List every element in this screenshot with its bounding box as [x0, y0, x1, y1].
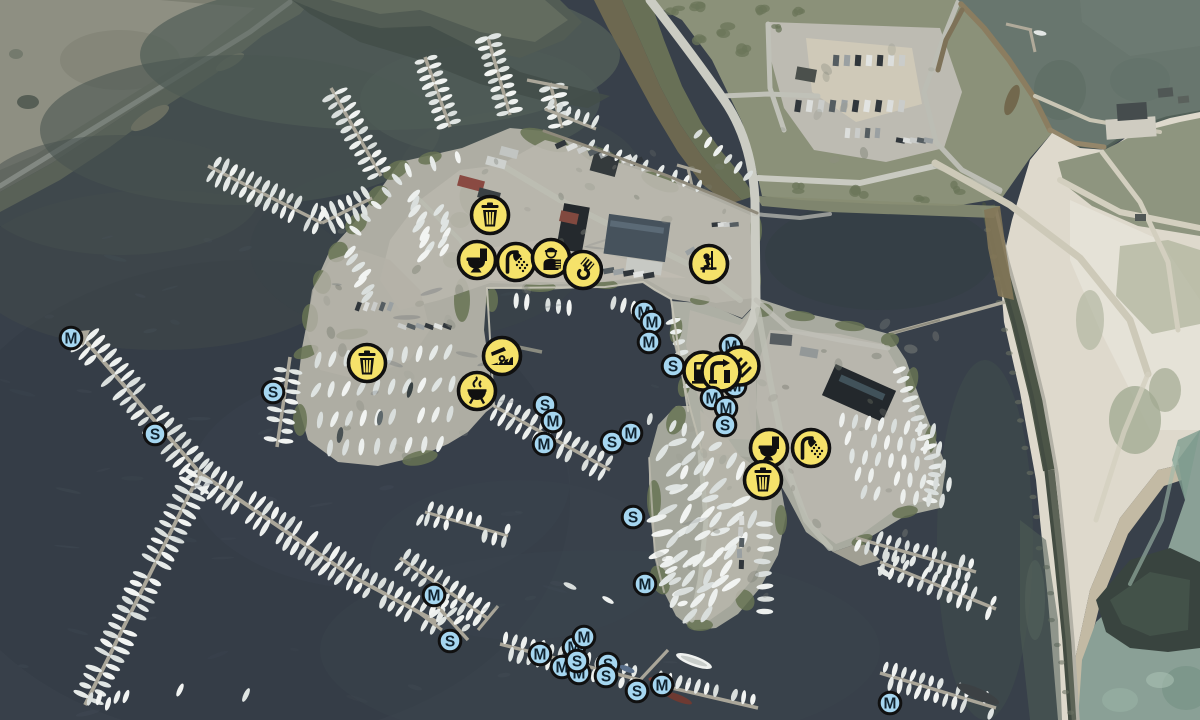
svg-text:S: S — [720, 418, 730, 435]
svg-text:S: S — [607, 435, 617, 452]
svg-text:M: M — [646, 315, 659, 332]
svg-text:S: S — [628, 510, 638, 527]
svg-text:M: M — [428, 588, 441, 605]
svg-text:M: M — [643, 335, 656, 352]
svg-text:S: S — [668, 359, 678, 376]
svg-text:M: M — [639, 577, 652, 594]
svg-text:S: S — [150, 427, 160, 444]
svg-text:S: S — [268, 385, 278, 402]
svg-text:S: S — [572, 654, 582, 671]
svg-text:M: M — [534, 647, 547, 664]
svg-text:M: M — [625, 426, 638, 443]
svg-text:M: M — [578, 630, 591, 647]
svg-text:S: S — [632, 684, 642, 701]
svg-text:S: S — [445, 634, 455, 651]
svg-text:M: M — [656, 678, 669, 695]
svg-text:M: M — [65, 331, 78, 348]
svg-text:M: M — [547, 414, 560, 431]
svg-text:M: M — [884, 696, 897, 713]
svg-text:S: S — [601, 669, 611, 686]
svg-text:M: M — [538, 437, 551, 454]
